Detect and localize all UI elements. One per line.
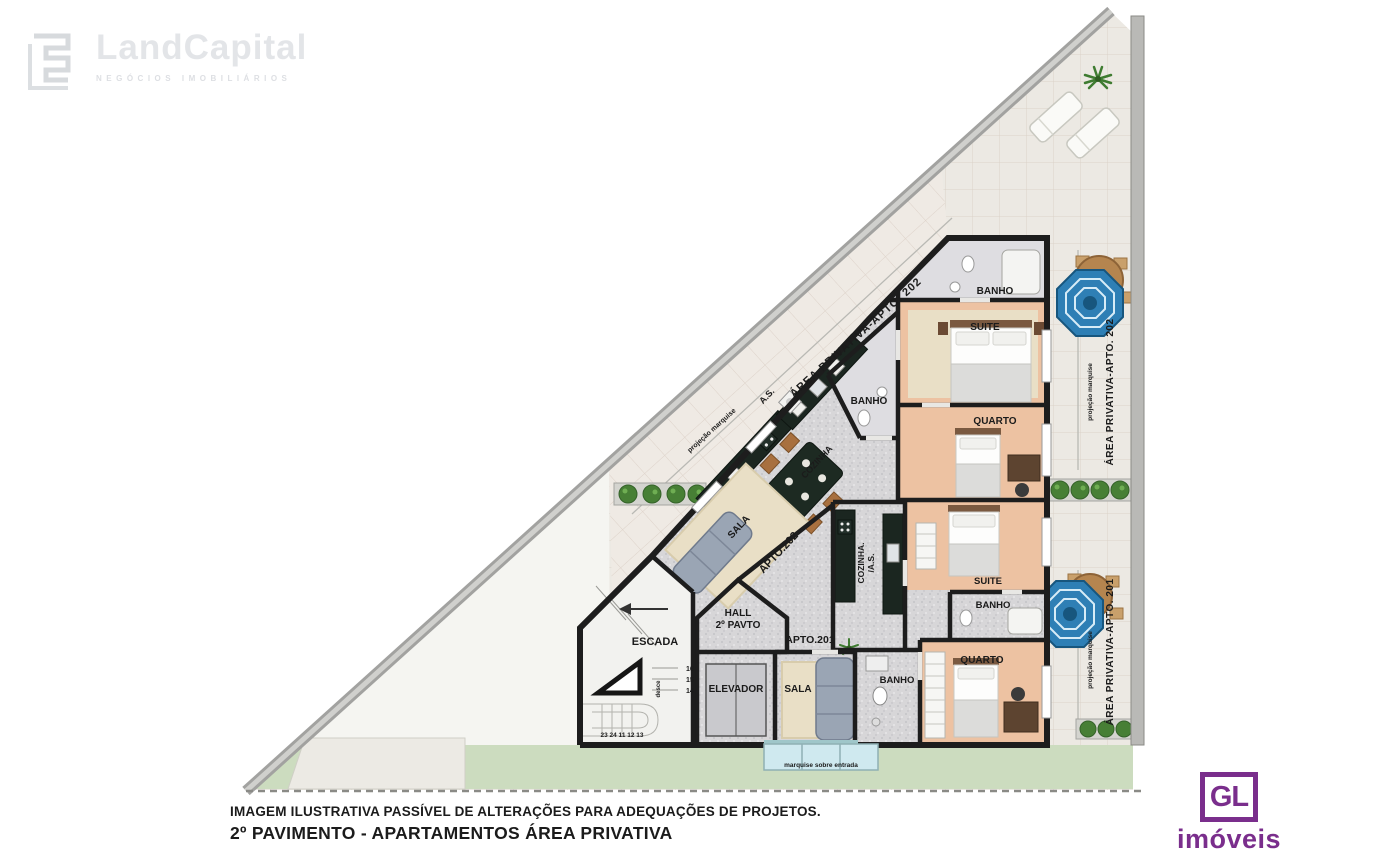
desce-label: desce xyxy=(656,680,662,698)
gl-logo-icon: GL xyxy=(1200,772,1258,822)
projecao-marquise-label-right-201: projeção marquise xyxy=(1087,631,1094,689)
gl-imoveis-logo: GL imóveis xyxy=(1166,772,1292,855)
suite-202-label: SUITE xyxy=(970,322,1000,333)
entry-walkway xyxy=(288,738,465,789)
quarto-202-bed xyxy=(955,428,1001,497)
hall-label-line2: 2º PAVTO xyxy=(716,620,761,631)
banho-201-label: BANHO xyxy=(880,675,915,686)
quarto-202-label: QUARTO xyxy=(973,416,1016,427)
suite-201-bed xyxy=(948,505,1000,576)
elevator-cabin xyxy=(706,664,766,736)
gl-initials: GL xyxy=(1210,783,1248,812)
projecao-marquise-label-right-202: projeção marquise xyxy=(1087,363,1094,421)
quarto-201-wardrobe xyxy=(925,652,945,738)
page-title: 2º PAVIMENTO - APARTAMENTOS ÁREA PRIVATI… xyxy=(230,823,821,844)
quarto-201-label: QUARTO xyxy=(960,655,1003,666)
banho-201-suite-label: BANHO xyxy=(976,600,1011,611)
steps-row-label: 23 24 11 12 13 xyxy=(600,732,643,739)
sala-201-sofa xyxy=(816,658,854,740)
footer-captions: IMAGEM ILUSTRATIVA PASSÍVEL DE ALTERAÇÕE… xyxy=(230,804,821,844)
step-16-label: 16 xyxy=(686,666,694,673)
suite-201-closet xyxy=(916,523,936,569)
floor-plan-svg: marquise sobre entrada ÁREA PRIVATIVA-AP… xyxy=(0,0,1375,850)
floorplan-page: { "watermark": { "brand": "LandCapital",… xyxy=(0,0,1375,850)
step-14-label: 14 xyxy=(686,688,694,695)
marquise-entrada-label: marquise sobre entrada xyxy=(784,762,858,769)
step-15-label: 15 xyxy=(686,677,694,684)
elevador-label: ELEVADOR xyxy=(709,684,765,695)
disclaimer-text: IMAGEM ILUSTRATIVA PASSÍVEL DE ALTERAÇÕE… xyxy=(230,804,821,819)
cozinha-201-label-line1: COZINHA. xyxy=(856,542,866,583)
quarto-201-bed xyxy=(953,658,999,737)
apto-201-label: APTO.201 xyxy=(785,634,835,646)
planter-right xyxy=(1048,479,1134,501)
area-202-right-label: ÁREA PRIVATIVA-APTO. 202 xyxy=(1103,318,1116,465)
entrance-marquise: marquise sobre entrada xyxy=(764,744,878,770)
banho-202-top-label: BANHO xyxy=(977,286,1014,297)
sala-201-label: SALA xyxy=(784,684,811,695)
banho-202-label: BANHO xyxy=(851,396,888,407)
cozinha-201-label-line2: /A.S. xyxy=(866,554,876,573)
area-201-right-label: ÁREA PRIVATIVA-APTO. 201 xyxy=(1103,578,1116,725)
suite-201-label: SUITE xyxy=(974,576,1002,587)
hall-label-line1: HALL xyxy=(725,608,752,619)
gl-name: imóveis xyxy=(1166,824,1292,855)
planter-left xyxy=(614,483,706,505)
escada-label: ESCADA xyxy=(632,636,679,648)
